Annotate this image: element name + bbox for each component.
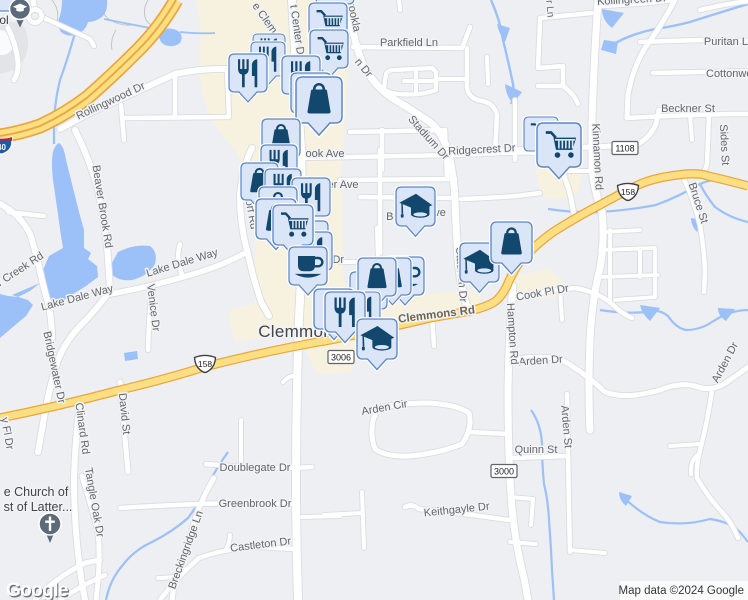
svg-text:st of Latter...: st of Latter...	[4, 500, 73, 514]
svg-text:40: 40	[0, 143, 6, 152]
svg-text:1108: 1108	[615, 143, 634, 153]
svg-text:3006: 3006	[331, 352, 351, 362]
svg-text:r Ln: r Ln	[543, 0, 555, 18]
svg-text:Cottonwood: Cottonwood	[706, 68, 748, 80]
svg-text:ook Ave: ook Ave	[306, 148, 345, 160]
svg-text:ol: ol	[0, 13, 9, 27]
svg-text:e Church of: e Church of	[4, 485, 69, 499]
svg-text:Sides St: Sides St	[717, 124, 731, 166]
svg-text:Doublegate Dr: Doublegate Dr	[220, 462, 291, 474]
svg-text:Parkfield Ln: Parkfield Ln	[380, 37, 438, 49]
svg-text:er Ave: er Ave	[328, 179, 359, 191]
svg-text:158: 158	[621, 187, 635, 197]
svg-text:Beckner St: Beckner St	[661, 103, 715, 115]
svg-text:Puritan Ln: Puritan Ln	[704, 36, 748, 48]
svg-text:Map data ©2024 Google: Map data ©2024 Google	[619, 585, 744, 597]
svg-text:3000: 3000	[494, 466, 514, 476]
svg-text:158: 158	[198, 359, 212, 369]
svg-text:Google: Google	[6, 580, 68, 600]
svg-text:Greenbrook Dr: Greenbrook Dr	[219, 498, 292, 510]
svg-text:Quinn St: Quinn St	[515, 444, 558, 456]
